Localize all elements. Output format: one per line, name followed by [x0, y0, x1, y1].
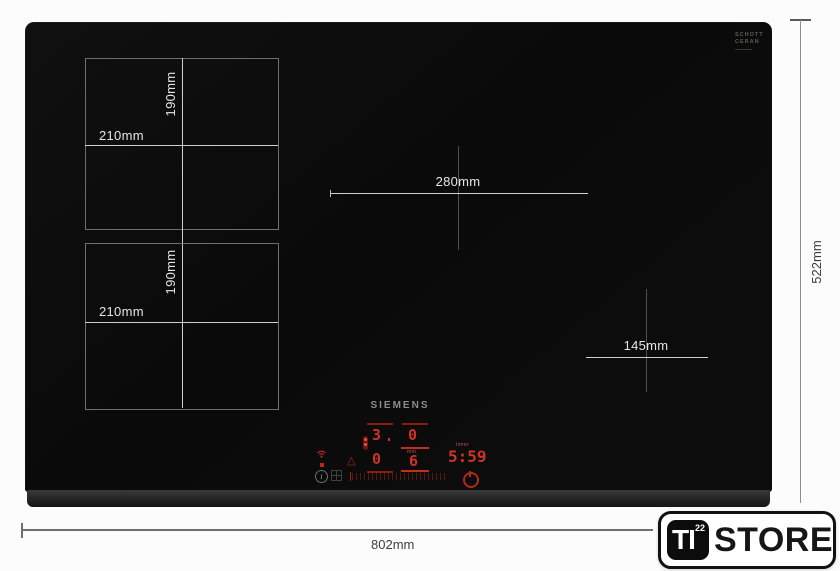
dim-line-280 — [330, 193, 588, 194]
slider-start-tick — [350, 472, 351, 481]
dim-label-145: 145mm — [606, 338, 686, 353]
zone-select-dash-rear-left[interactable] — [367, 423, 393, 425]
display-front-right: 6 — [409, 454, 418, 469]
wifi-icon — [316, 445, 327, 463]
dim-line-210-bottom — [85, 322, 278, 323]
power-icon[interactable] — [463, 472, 479, 488]
power-level-slider[interactable] — [352, 473, 446, 480]
store-badge-text: STORE — [714, 521, 833, 560]
schott-line: SCHOTT — [735, 32, 764, 38]
schott-ceran-logo: SCHOTT CERAN — [735, 32, 777, 50]
schott-subline — [735, 49, 752, 50]
ceran-line: CERAN — [735, 39, 760, 45]
dim-label-210-bottom: 210mm — [99, 304, 144, 319]
depth-dim-line — [800, 20, 801, 503]
warning-triangle-icon: △ — [347, 456, 355, 467]
zone-border-front-left — [85, 243, 279, 410]
hob-front-trim — [27, 490, 770, 507]
flex-zone-icon[interactable] — [331, 470, 342, 481]
info-icon[interactable]: i — [315, 470, 328, 483]
zone-crosshair-center — [458, 146, 459, 250]
siemens-logo: SIEMENS — [355, 400, 445, 411]
dim-label-190-bottom: 190mm — [164, 249, 178, 295]
dim-tick-280-left — [330, 190, 331, 197]
timer-display: 5:59 — [448, 449, 487, 465]
display-front-left: 0 — [372, 452, 381, 467]
zone-select-dash-rear-right[interactable] — [402, 423, 428, 425]
boost-dot — [388, 438, 390, 441]
width-dim-line — [22, 529, 653, 531]
dim-label-210-top: 210mm — [99, 128, 144, 143]
pan-presence-indicator — [363, 436, 368, 450]
dim-label-190-top: 190mm — [164, 71, 178, 117]
dim-line-145 — [586, 357, 708, 358]
status-dot-indicator — [320, 463, 324, 467]
display-rear-right: 0 — [408, 428, 417, 443]
store-badge-monogram: TI — [672, 524, 695, 556]
store-badge-monogram-box: TI 22 — [667, 520, 709, 560]
dim-label-280: 280mm — [418, 174, 498, 189]
width-dim-label: 802mm — [371, 537, 414, 552]
display-rear-left: 3 — [372, 428, 381, 443]
zone-select-line-front-right-bottom[interactable] — [401, 470, 429, 472]
store-badge-superscript: 22 — [695, 523, 705, 533]
store-badge: TI 22 STORE — [658, 511, 836, 569]
depth-dim-label: 522mm — [810, 238, 824, 286]
